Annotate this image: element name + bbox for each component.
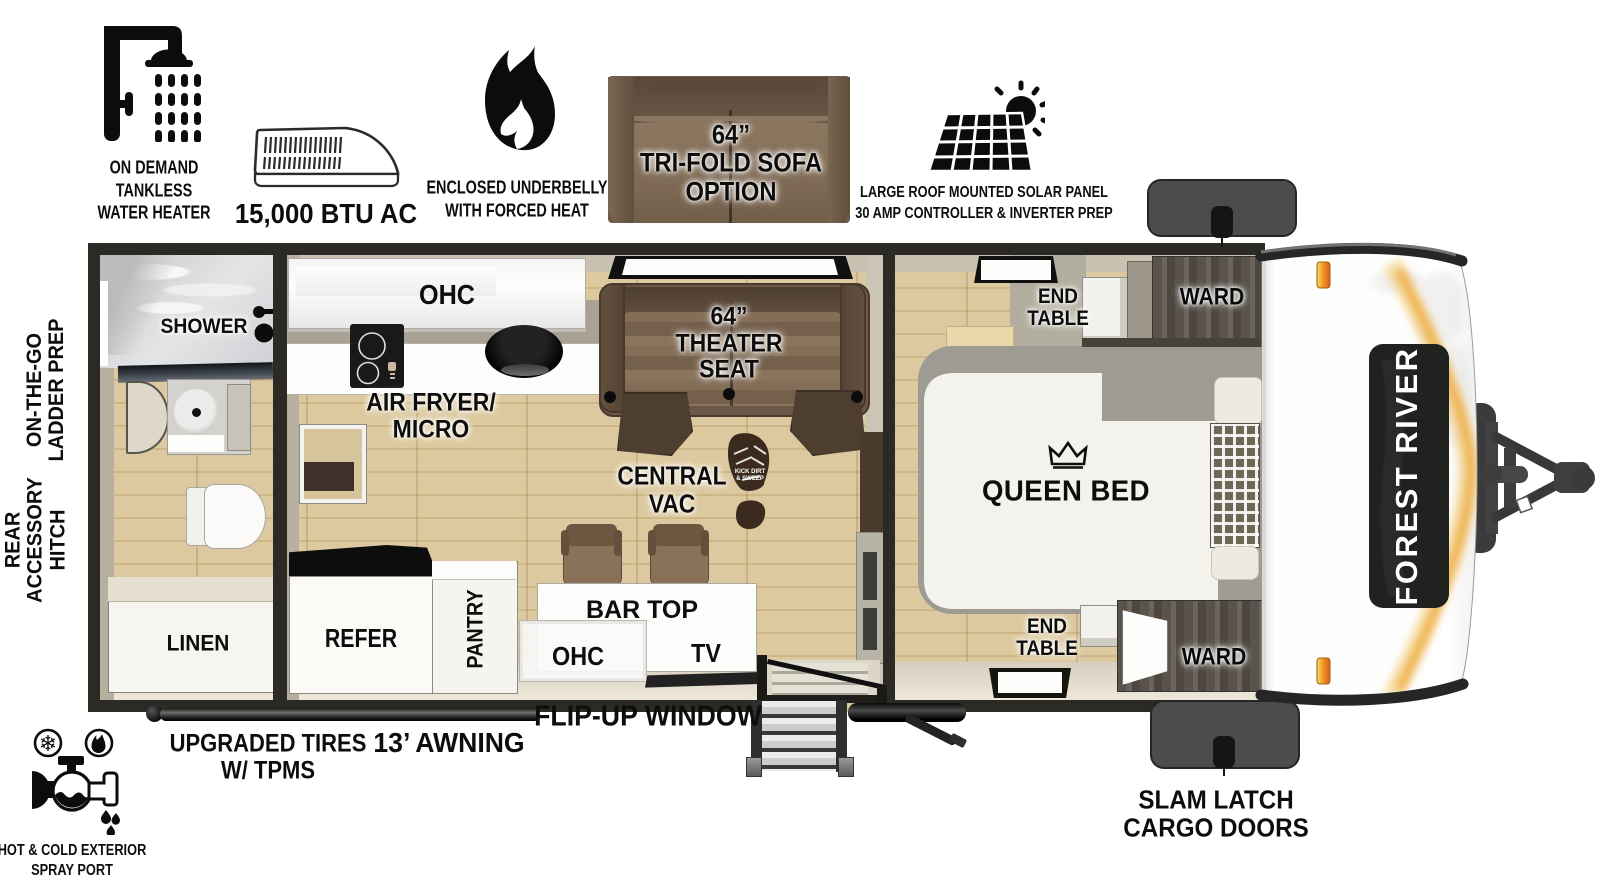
svg-text:KICK DIRT: KICK DIRT bbox=[735, 469, 766, 475]
svg-text:& SWEEP: & SWEEP bbox=[736, 476, 764, 482]
svg-text:❄: ❄ bbox=[39, 731, 57, 756]
svg-text:FOREST RIVER: FOREST RIVER bbox=[1389, 346, 1424, 605]
